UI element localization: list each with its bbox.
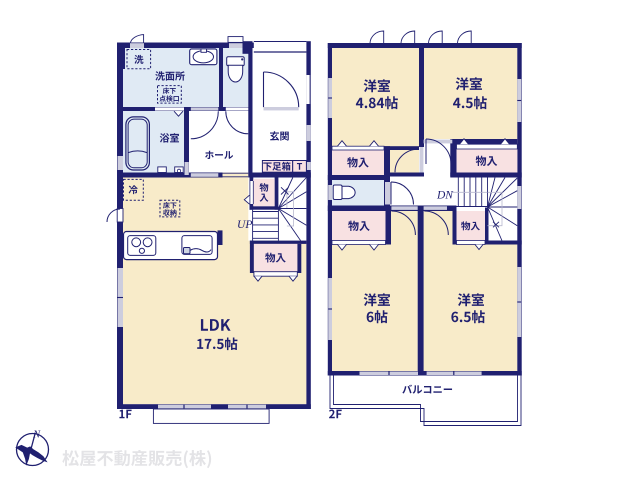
svg-text:UP: UP bbox=[237, 219, 252, 231]
svg-text:DN: DN bbox=[436, 190, 454, 202]
svg-text:N: N bbox=[32, 430, 41, 441]
